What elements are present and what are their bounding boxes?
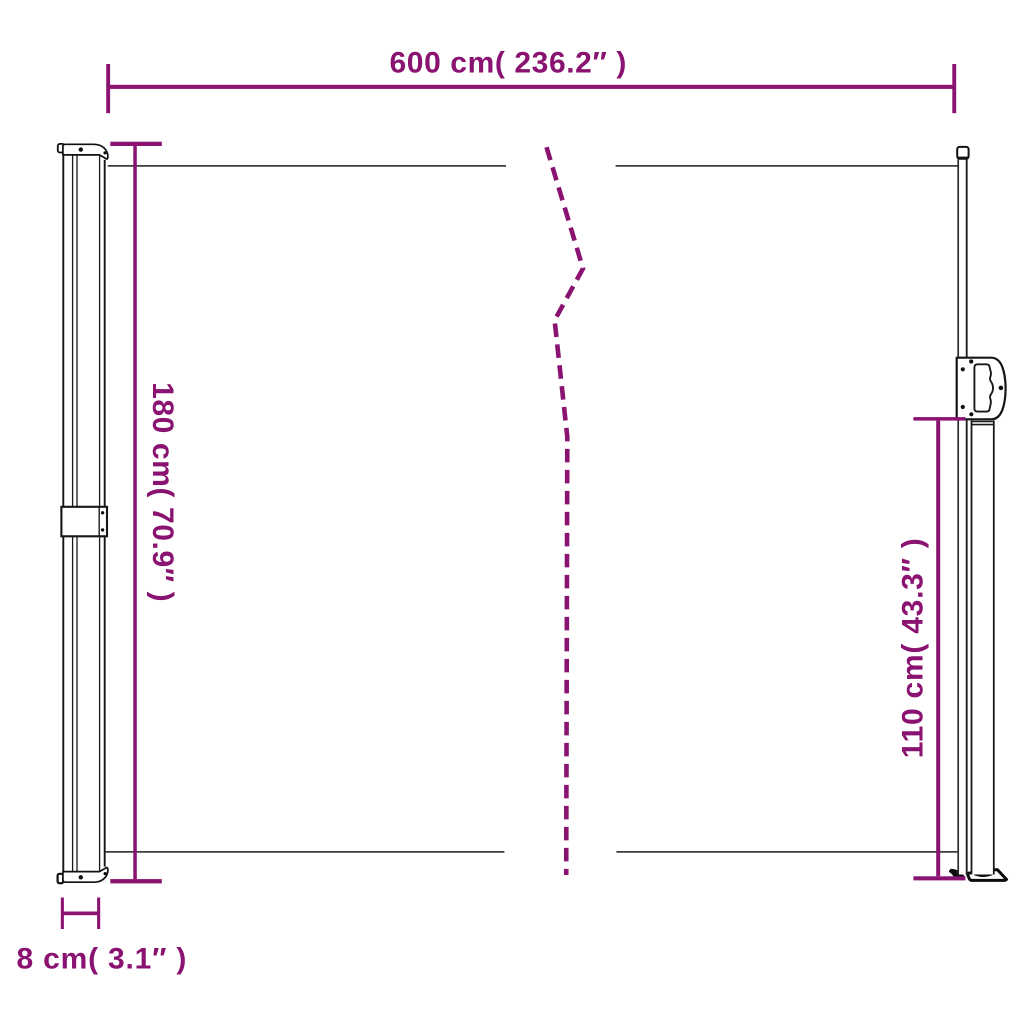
svg-text:180 cm( 70.9″ ): 180 cm( 70.9″ ) — [146, 382, 179, 602]
svg-text:8 cm( 3.1″ ): 8 cm( 3.1″ ) — [17, 943, 188, 976]
svg-text:600 cm( 236.2″ ): 600 cm( 236.2″ ) — [390, 47, 627, 80]
svg-text:110 cm( 43.3″ ): 110 cm( 43.3″ ) — [897, 537, 930, 758]
